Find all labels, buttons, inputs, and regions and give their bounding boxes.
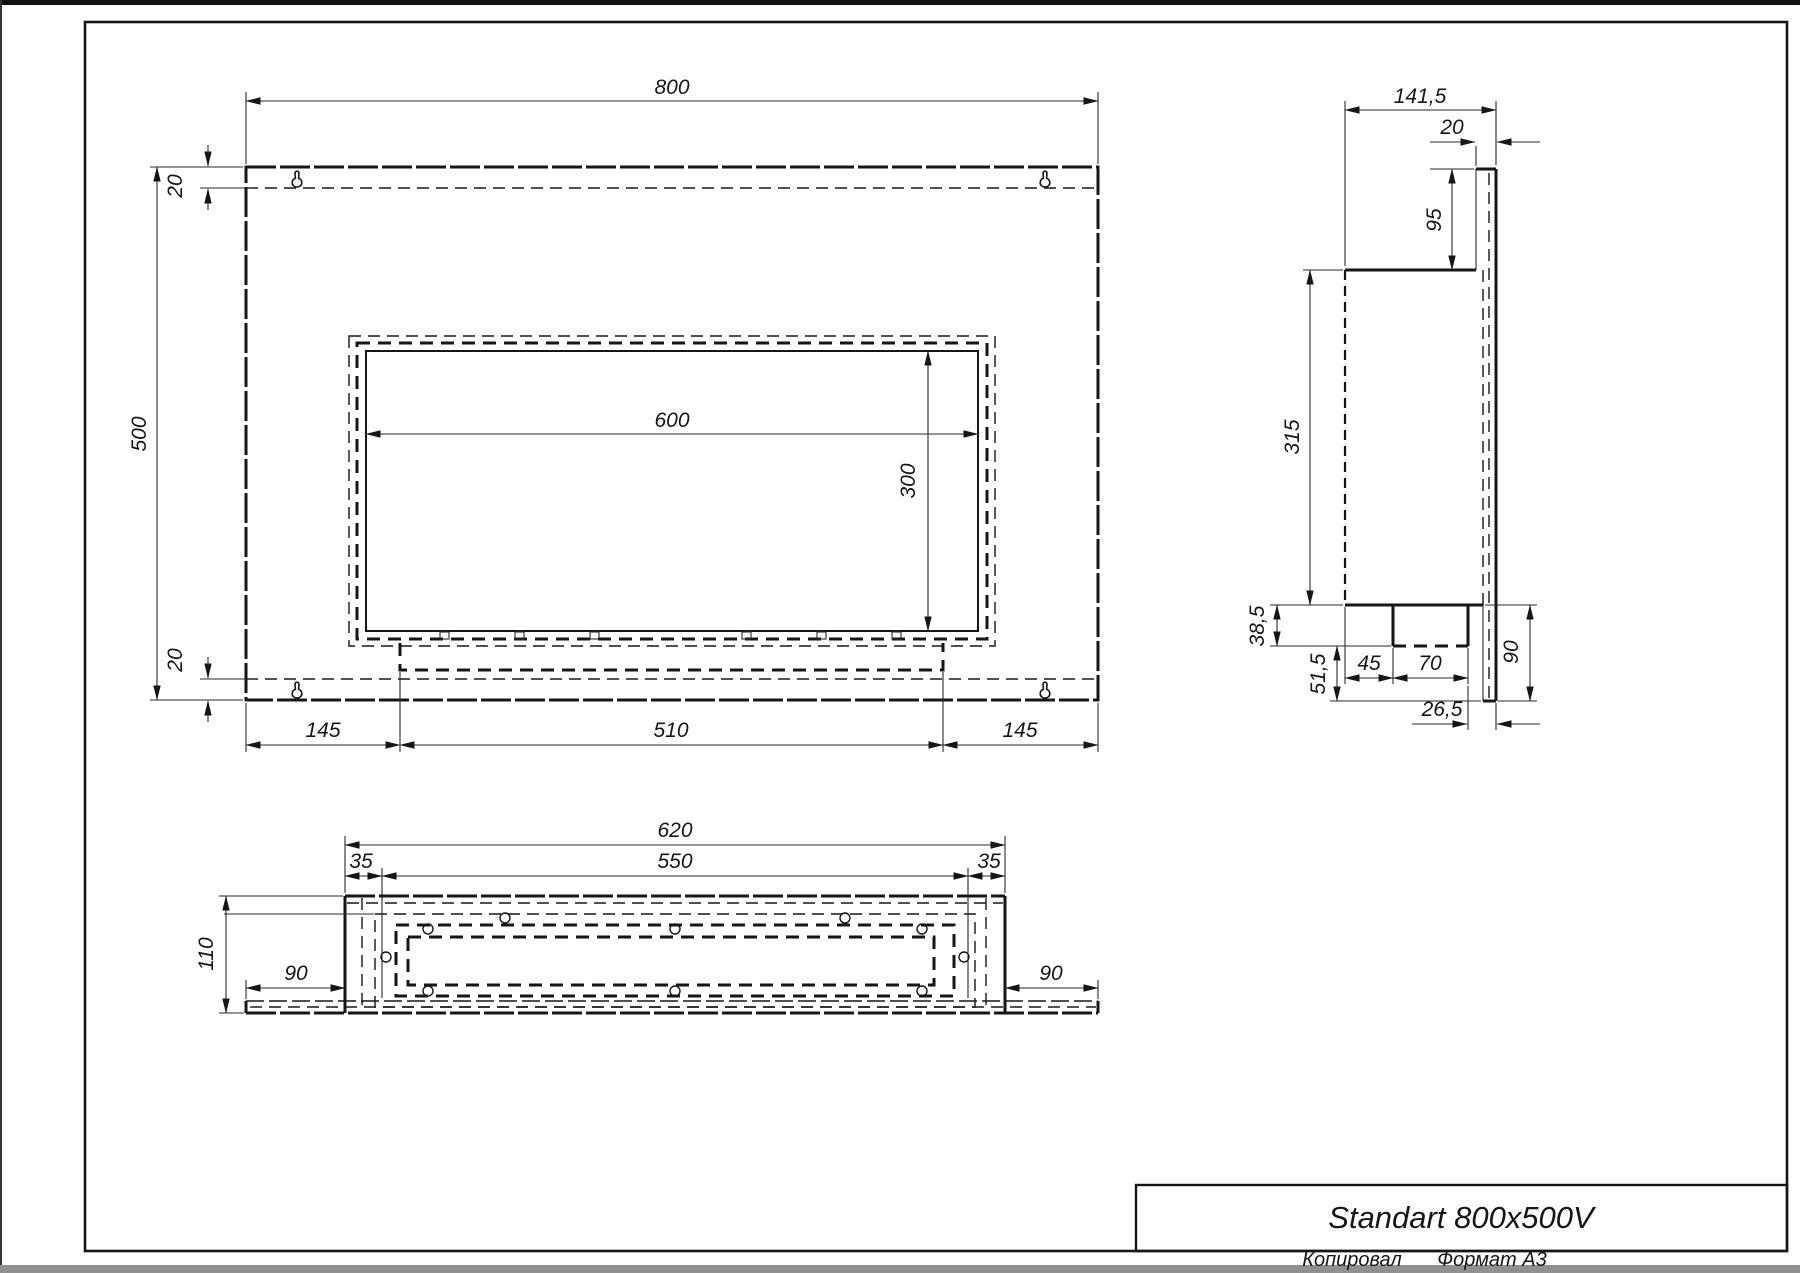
dim-side-tray-depth: 70	[1418, 652, 1442, 675]
dim-bottom-flange-left: 90	[284, 962, 308, 985]
bottom-outline	[224, 896, 1098, 1013]
front-view: 800 500 20 20 600 300	[128, 76, 1098, 752]
burner-tray-hidden	[400, 643, 943, 670]
dim-bottom-right-margin: 35	[977, 850, 1001, 873]
footer-copied-by: Копировал	[1302, 1249, 1401, 1271]
keyhole-icon	[292, 682, 302, 698]
side-outline	[1345, 169, 1496, 701]
dim-side-overall-depth: 141,5	[1394, 85, 1447, 108]
dim-side-tray-offset: 45	[1357, 652, 1381, 675]
front-opening	[349, 336, 995, 670]
dim-front-bottom-right: 145	[1002, 719, 1037, 742]
dim-bottom-flange-right: 90	[1039, 962, 1063, 985]
keyhole-icon	[292, 171, 302, 187]
keyhole-icon	[1040, 682, 1050, 698]
dim-front-bottom-left: 145	[305, 719, 340, 742]
footer-format: Формат А3	[1437, 1249, 1546, 1271]
dim-front-top-fold: 20	[164, 174, 187, 199]
keyhole-icon	[1040, 171, 1050, 187]
dim-bottom-overall-depth: 110	[195, 937, 218, 971]
title-block-title: Standart 800x500V	[1328, 1200, 1597, 1235]
sheet-border	[85, 22, 1787, 1251]
dim-side-top-offset: 95	[1423, 208, 1446, 232]
dim-front-overall-height: 500	[128, 416, 151, 451]
dim-side-flange-depth: 20	[1439, 116, 1464, 139]
title-block: Standart 800x500V	[1136, 1185, 1787, 1251]
dim-side-body-height: 315	[1281, 419, 1304, 454]
dim-front-opening-width: 600	[654, 409, 689, 432]
dim-side-below-tray: 51,5	[1307, 653, 1330, 694]
dim-side-flange-drop: 90	[1500, 640, 1523, 664]
front-dimensions: 800 500 20 20 600 300	[128, 76, 1098, 752]
bottom-view: 620 35 550 35 110 90 90	[195, 819, 1098, 1013]
dim-front-overall-width: 800	[654, 76, 689, 99]
dim-side-back-offset: 26,5	[1421, 698, 1463, 721]
dim-bottom-overall-width: 620	[657, 819, 692, 842]
dim-side-tray-drop: 38,5	[1246, 605, 1269, 646]
dim-bottom-left-margin: 35	[349, 850, 373, 873]
dim-front-tray-width: 510	[653, 719, 688, 742]
dim-front-opening-height: 300	[897, 463, 920, 498]
side-view: 141,5 20 95 315 38,5 51,5	[1246, 85, 1540, 730]
dim-front-bottom-fold: 20	[164, 648, 187, 673]
technical-drawing: 800 500 20 20 600 300	[0, 0, 1800, 1273]
drawing-sheet: 800 500 20 20 600 300	[0, 0, 1800, 1273]
dim-bottom-frame-width: 550	[657, 850, 692, 873]
